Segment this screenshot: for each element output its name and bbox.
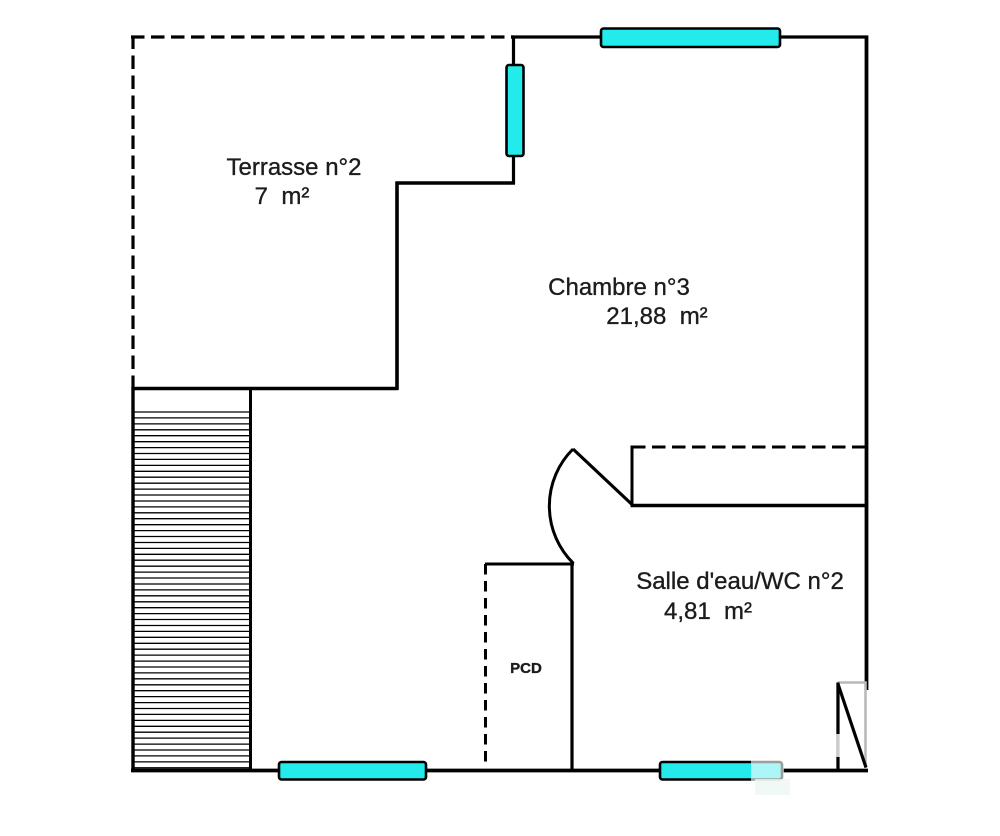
svg-text:Chambre n°3: Chambre n°3 — [548, 274, 690, 301]
svg-text:21,88 m²: 21,88 m² — [606, 303, 707, 330]
svg-text:Salle d'eau/WC n°2: Salle d'eau/WC n°2 — [636, 568, 844, 595]
svg-text:PCD: PCD — [510, 660, 542, 677]
svg-text:Terrasse n°2: Terrasse n°2 — [227, 154, 362, 181]
svg-text:4,81 m²: 4,81 m² — [664, 598, 752, 625]
svg-text:7 m²: 7 m² — [255, 183, 310, 210]
